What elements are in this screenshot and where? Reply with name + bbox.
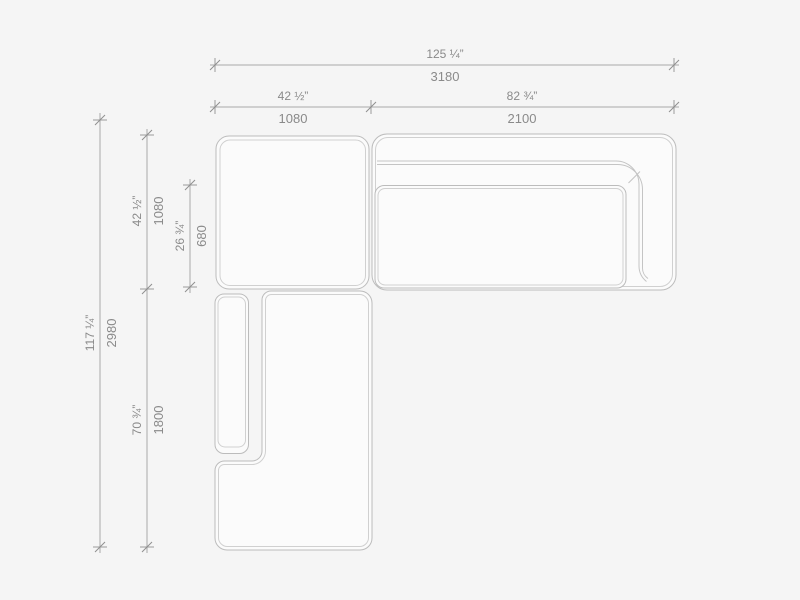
dim-width-right-mm: 2100 [508,111,537,126]
dim-height-lower-inches: 70 ¾” [130,405,144,436]
dim-width-right-inches: 82 ¾” [507,89,538,103]
dim-height-seat-mm: 680 [194,225,209,247]
dim-height-total-mm: 2980 [104,319,119,348]
sofa-plan-drawing: 125 ¼” 3180 42 ½” 1080 82 ¾” 2100 117 ¼”… [0,0,800,600]
dim-width-total-mm: 3180 [431,69,460,84]
dim-width-total-inches: 125 ¼” [426,47,463,61]
module-b-seat-cushion-outer [375,186,626,289]
module-c-arm-cushion-outer [215,294,249,454]
dim-height-upper-mm: 1080 [151,197,166,226]
dim-height-total-inches: 117 ¼” [83,315,97,351]
dim-height-upper-inches: 42 ½” [130,196,144,227]
sofa-plan [215,134,676,550]
dim-width-left-inches: 42 ½” [278,89,309,103]
dim-height-seat-inches: 26 ¾” [173,221,187,252]
dim-height-lower-mm: 1800 [151,406,166,435]
drawing-svg: 125 ¼” 3180 42 ½” 1080 82 ¾” 2100 117 ¼”… [0,0,800,600]
module-a-outer [216,136,369,289]
square-ottoman-module [216,136,369,289]
sofa-module-back-and-right-arm [372,134,676,290]
dim-width-left-mm: 1080 [279,111,308,126]
chaise-module-left-arm-cushion [215,291,372,550]
dimension-ticks [93,58,679,552]
